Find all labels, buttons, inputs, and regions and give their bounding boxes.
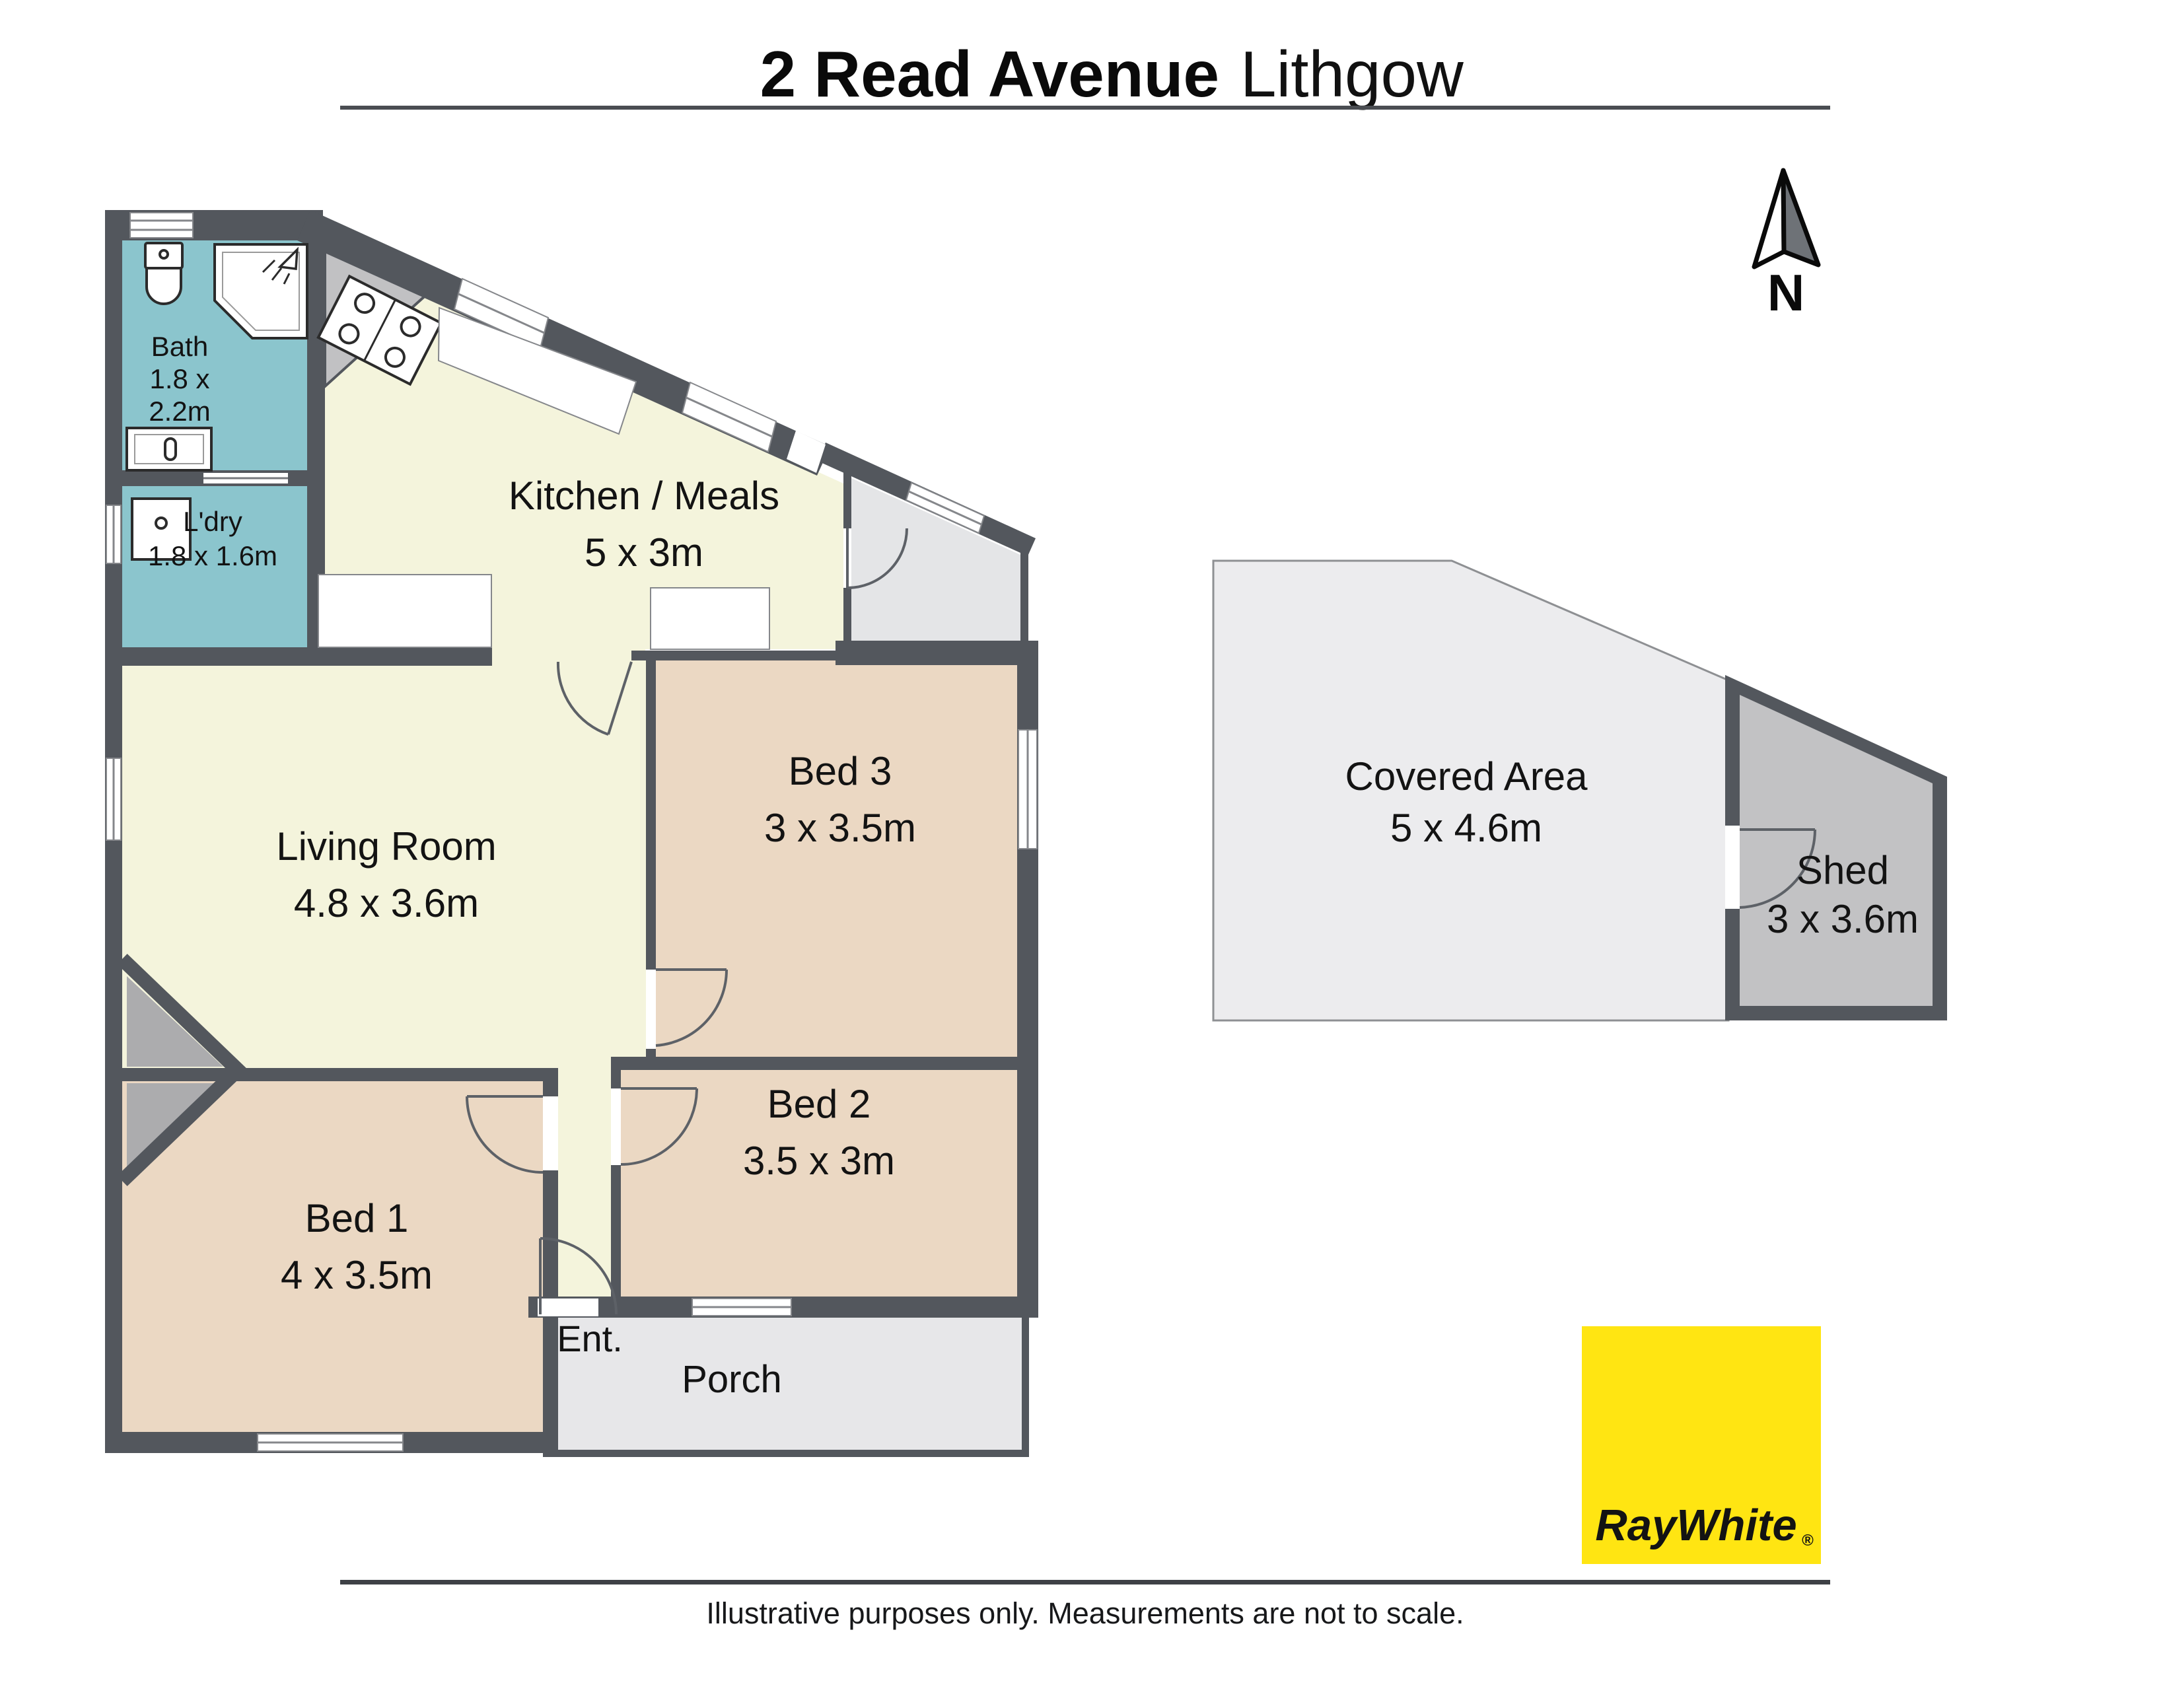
bed2-dims: 3.5 x 3m <box>743 1139 895 1183</box>
footer-rule <box>340 1580 1830 1584</box>
porch-edge-bottom <box>543 1450 1029 1457</box>
shed-dims: 3 x 3.6m <box>1767 897 1919 941</box>
bed3-floor <box>656 660 1017 1057</box>
footer: Illustrative purposes only. Measurements… <box>340 1580 1830 1630</box>
laundry-dims: 1.8 x 1.6m <box>148 540 277 571</box>
wall-side-entry-right <box>1020 540 1028 644</box>
bed2-door-gap <box>611 1088 621 1165</box>
bath-dims-1: 1.8 x <box>149 363 209 394</box>
bed2-label: Bed 2 <box>767 1082 871 1126</box>
page-title-suburb: Lithgow <box>1240 38 1464 110</box>
laundry-label: L'dry <box>183 506 242 537</box>
bed2-window <box>692 1299 791 1316</box>
bed1-window <box>258 1434 403 1451</box>
raywhite-logo: RayWhite ® <box>1582 1326 1821 1564</box>
bath-window <box>130 213 193 238</box>
porch-edge-right <box>1022 1318 1029 1457</box>
entry-label: Ent. <box>557 1318 623 1359</box>
living-window <box>106 758 121 840</box>
bed3-door-gap <box>646 970 656 1049</box>
shed-door-gap <box>1725 826 1740 909</box>
living-label: Living Room <box>276 824 497 869</box>
compass-label: N <box>1767 264 1804 322</box>
kitchen-living-opening <box>492 643 645 665</box>
wall-bed3-bed2 <box>611 1057 1038 1070</box>
shed-label: Shed <box>1796 848 1889 892</box>
north-arrow-icon: N <box>1754 170 1818 322</box>
covered-area-label: Covered Area <box>1345 754 1588 799</box>
entry-door-gap <box>538 1299 598 1316</box>
footer-disclaimer: Illustrative purposes only. Measurements… <box>706 1596 1464 1630</box>
vanity-sink-icon <box>127 428 211 470</box>
laundry-window <box>106 505 121 563</box>
kitchen-bench-right <box>651 588 769 649</box>
toilet-icon <box>145 243 182 304</box>
header-rule <box>340 106 1830 110</box>
bed1-dims: 4 x 3.5m <box>281 1253 433 1297</box>
living-dims: 4.8 x 3.6m <box>294 881 479 925</box>
porch-label: Porch <box>682 1358 782 1401</box>
header: 2 Read Avenue Lithgow <box>340 38 1830 110</box>
bed3-window <box>1018 730 1037 849</box>
floorplan-page: 2 Read Avenue Lithgow <box>0 0 2169 1708</box>
bed3-label: Bed 3 <box>789 749 892 793</box>
bath-label: Bath <box>151 331 208 362</box>
wall-bed3-top-thick <box>836 641 1038 665</box>
logo-text: RayWhite <box>1595 1501 1796 1550</box>
wall-living-top <box>105 647 492 666</box>
wall-living-bed1 <box>122 1068 558 1081</box>
kitchen-dims: 5 x 3m <box>585 530 703 575</box>
wall-bed2-bottom <box>606 1297 1038 1318</box>
page-title-address: 2 Read Avenue <box>760 38 1219 110</box>
covered-area-dims: 5 x 4.6m <box>1390 806 1542 850</box>
bed1-door-gap <box>543 1096 558 1170</box>
bed3-dims: 3 x 3.5m <box>764 806 916 850</box>
bath-dims-2: 2.2m <box>149 396 210 427</box>
kitchen-bench-left <box>318 575 491 647</box>
bed1-label: Bed 1 <box>305 1196 409 1240</box>
kitchen-label: Kitchen / Meals <box>509 474 779 518</box>
logo-registered-mark: ® <box>1802 1532 1814 1549</box>
